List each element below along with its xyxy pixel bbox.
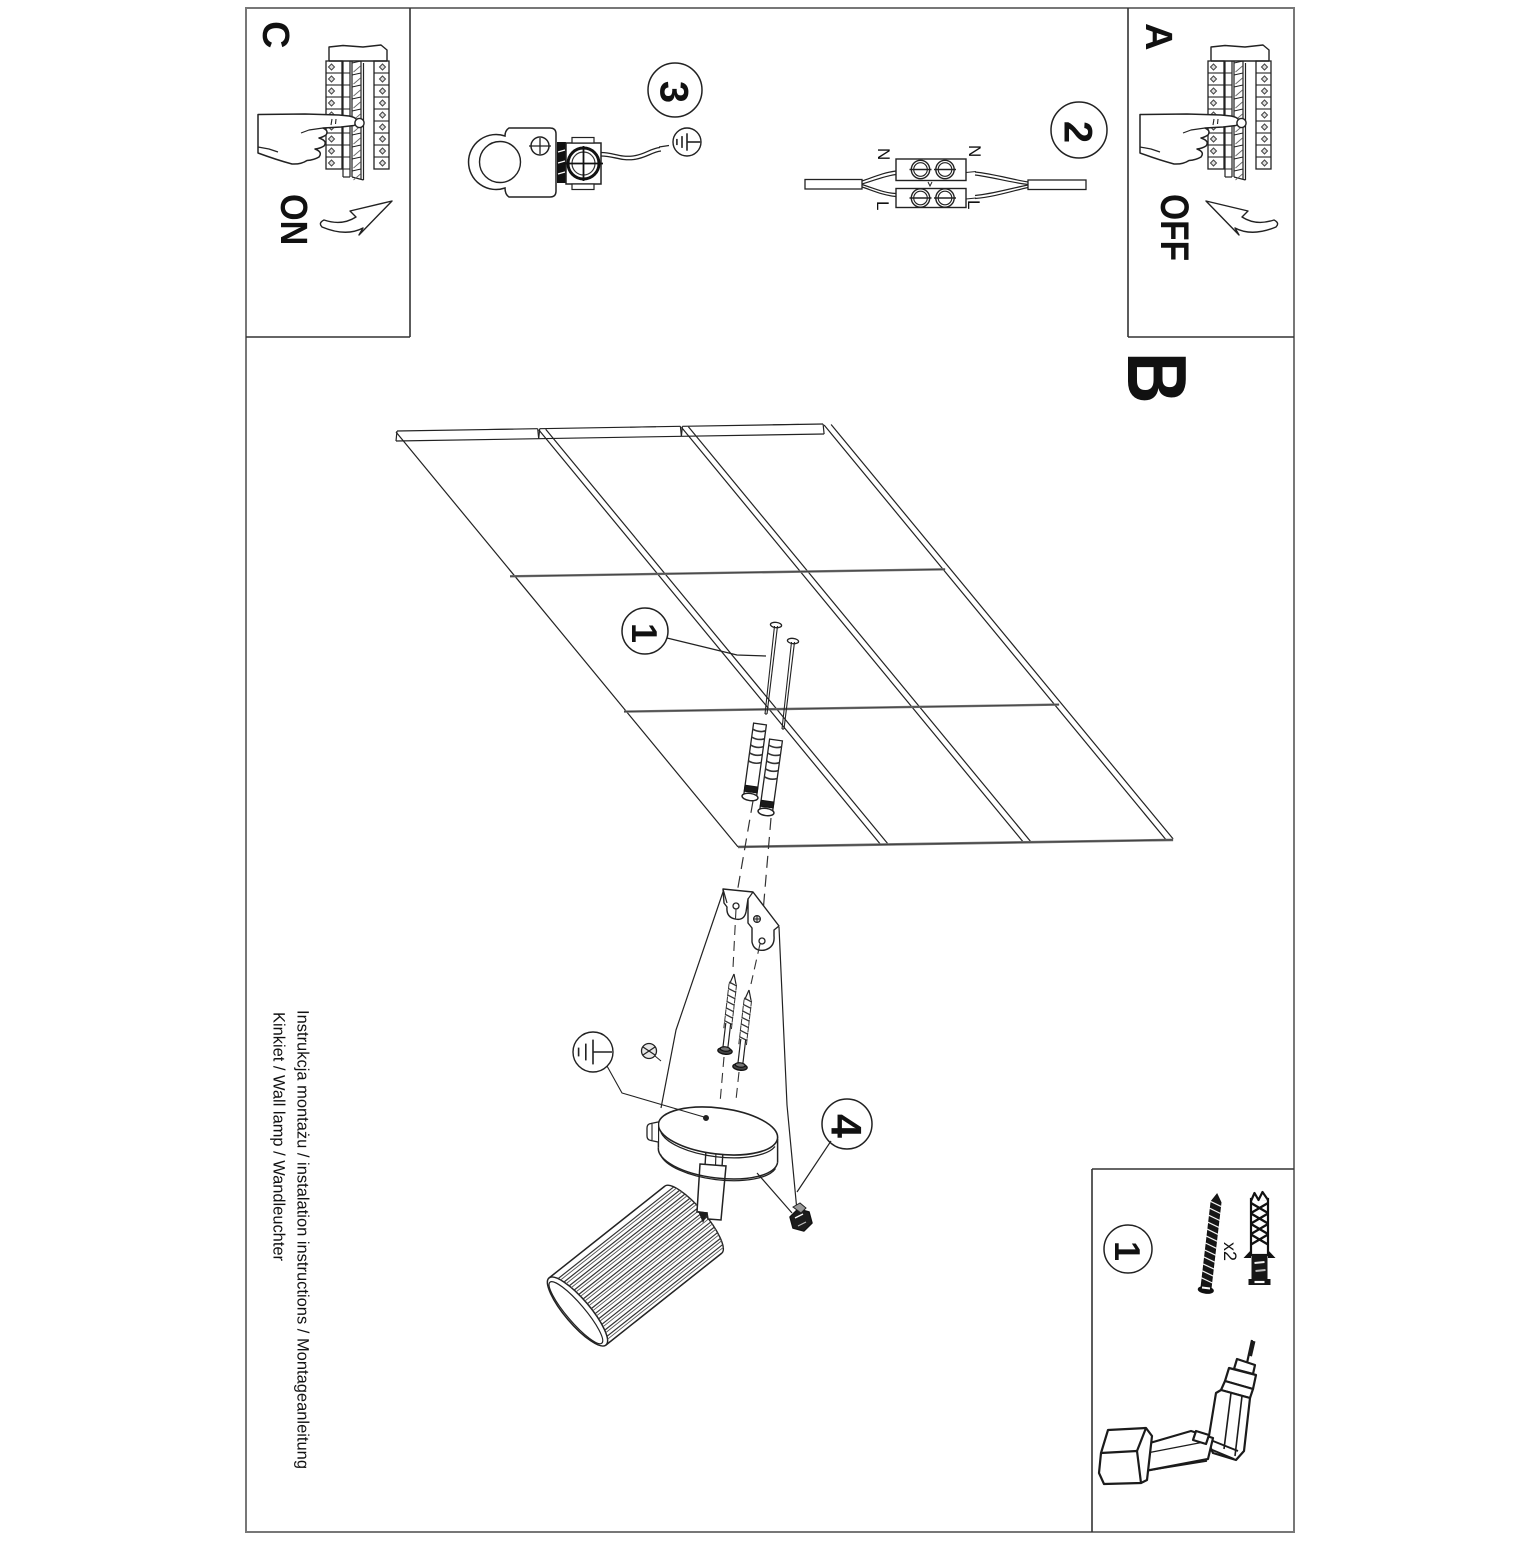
svg-text:N: N: [965, 145, 984, 157]
svg-text:1: 1: [1107, 1241, 1148, 1261]
svg-text:C: C: [254, 21, 296, 48]
svg-text:2: 2: [1056, 121, 1100, 143]
svg-text:L: L: [873, 201, 892, 210]
svg-text:Instrukcja montażu / instalati: Instrukcja montażu / instalation instruc…: [294, 1010, 312, 1469]
svg-text:OFF: OFF: [1152, 194, 1196, 261]
svg-text:N: N: [874, 148, 893, 160]
svg-text:B: B: [1110, 352, 1204, 404]
svg-text:A: A: [1137, 23, 1179, 50]
svg-text:4: 4: [822, 1114, 870, 1138]
svg-text:x2: x2: [1220, 1242, 1240, 1261]
svg-text:L: L: [964, 200, 983, 209]
svg-text:ON: ON: [272, 194, 314, 245]
svg-text:1: 1: [624, 623, 665, 643]
svg-text:Kinkiet / Wall lamp / Wandleuc: Kinkiet / Wall lamp / Wandleuchter: [270, 1012, 288, 1261]
svg-text:3: 3: [652, 81, 696, 103]
